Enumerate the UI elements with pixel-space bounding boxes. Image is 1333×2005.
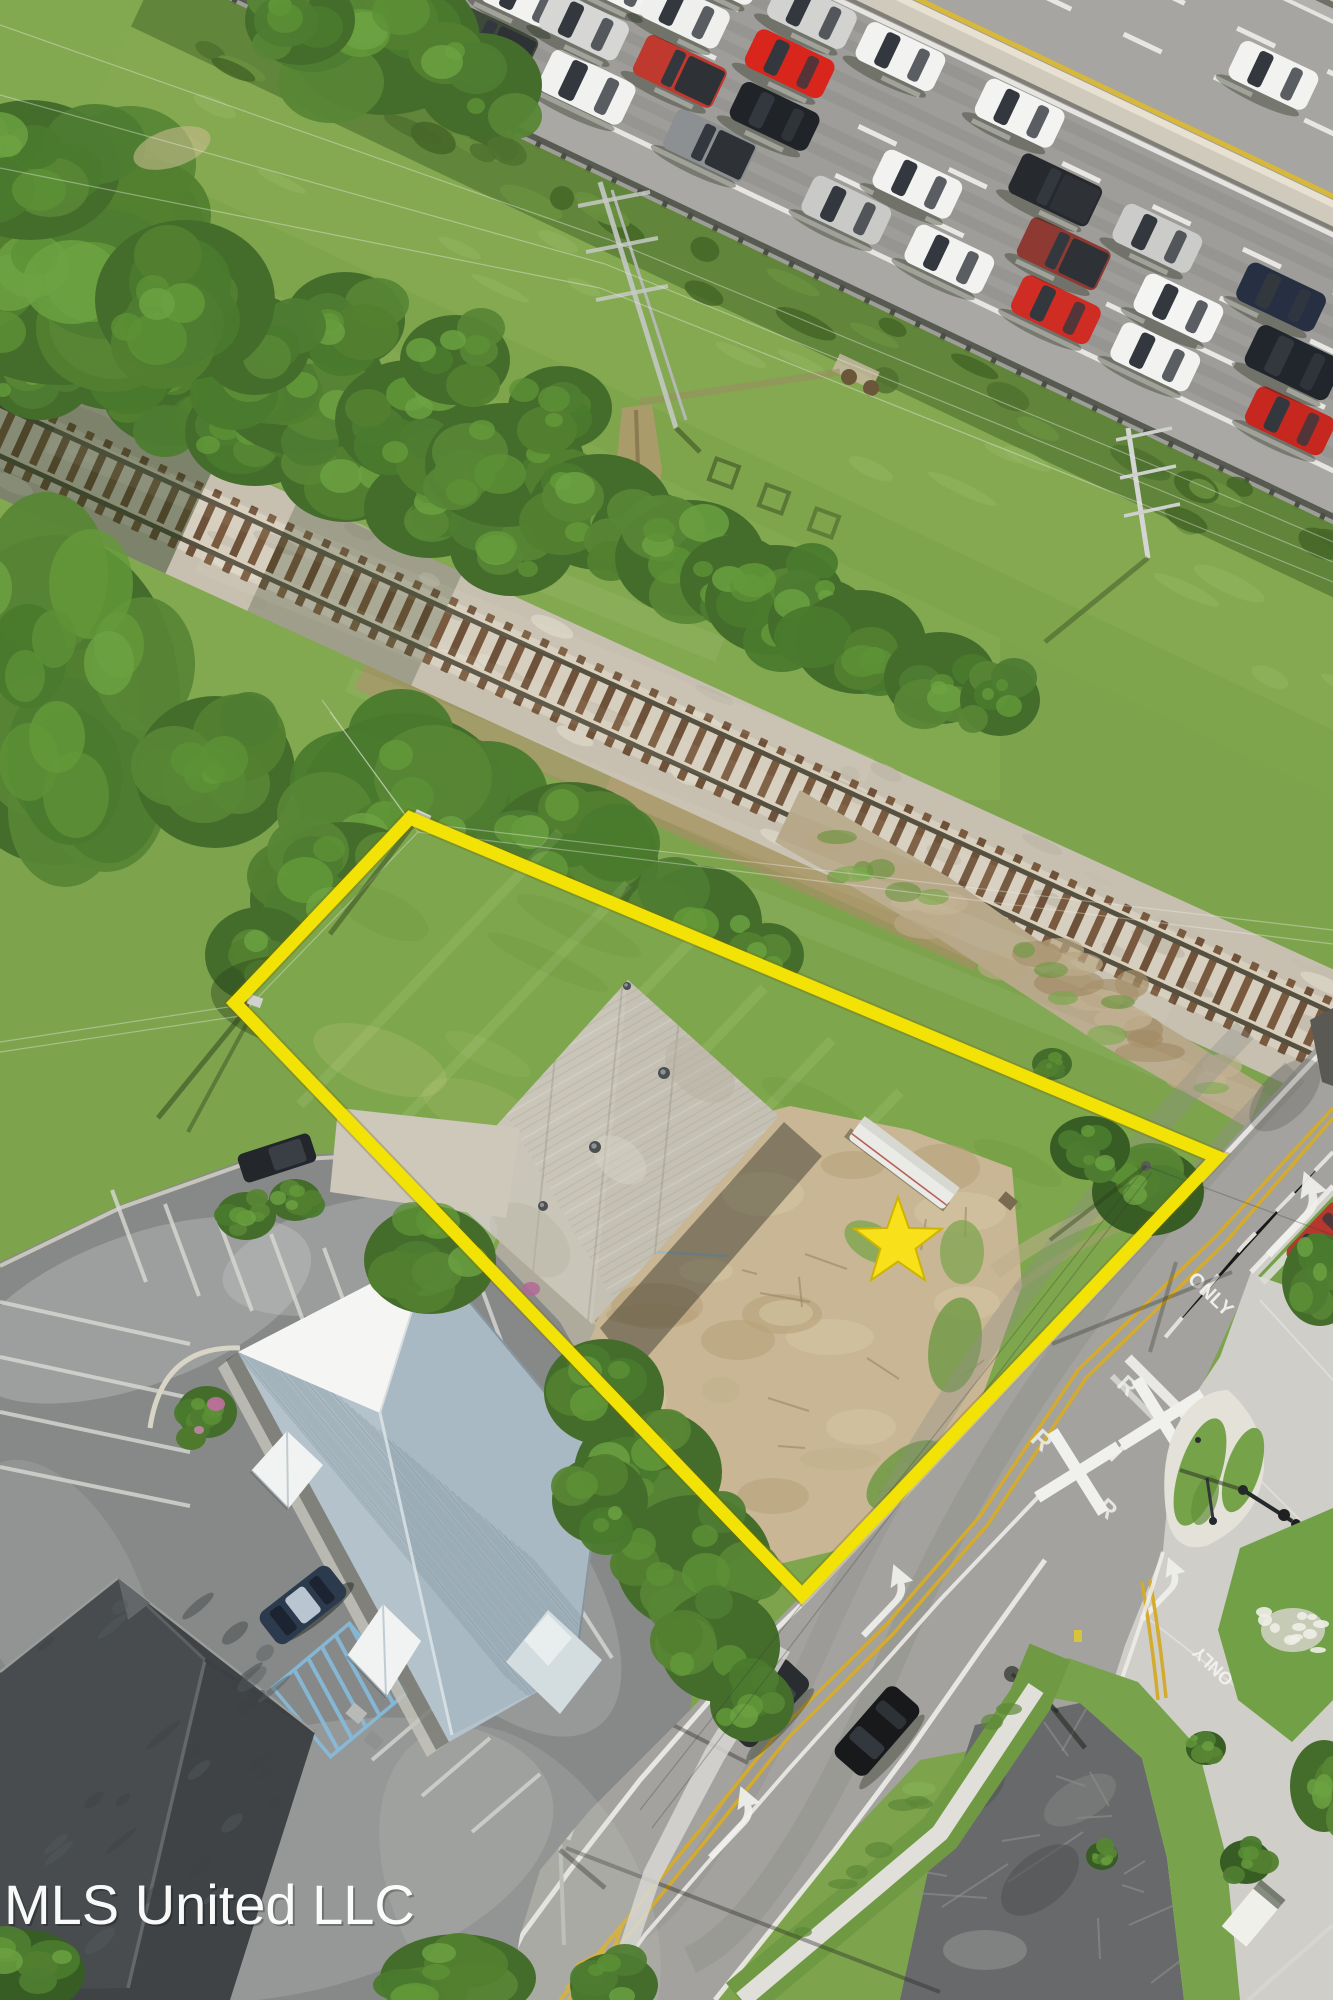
svg-text:MLS United LLC: MLS United LLC <box>4 1873 415 1936</box>
